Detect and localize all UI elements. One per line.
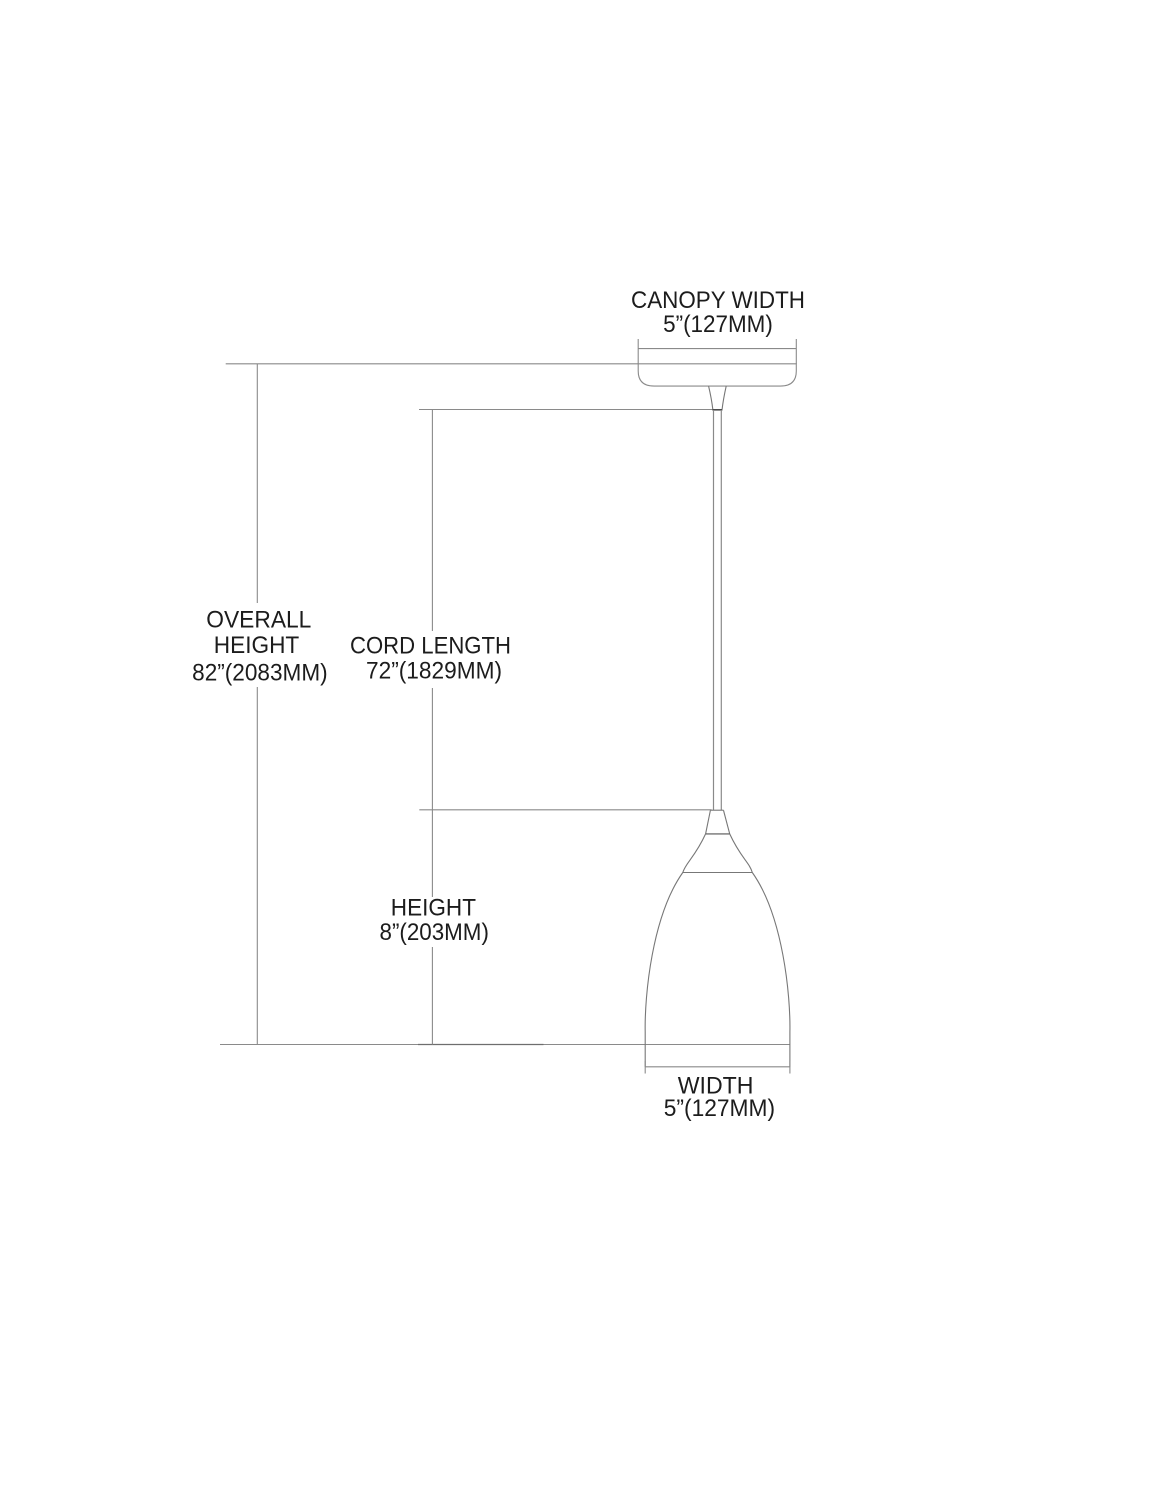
svg-text:82”(2083MM): 82”(2083MM) — [192, 660, 328, 687]
svg-text:72”(1829MM): 72”(1829MM) — [366, 658, 502, 685]
svg-text:HEIGHT: HEIGHT — [391, 895, 477, 922]
svg-text:CORD LENGTH: CORD LENGTH — [350, 632, 511, 659]
svg-text:5”(127MM): 5”(127MM) — [663, 311, 773, 338]
svg-text:5”(127MM): 5”(127MM) — [664, 1095, 775, 1122]
svg-text:OVERALL: OVERALL — [206, 606, 311, 633]
svg-text:HEIGHT: HEIGHT — [214, 632, 300, 659]
svg-text:8”(203MM): 8”(203MM) — [380, 919, 489, 946]
